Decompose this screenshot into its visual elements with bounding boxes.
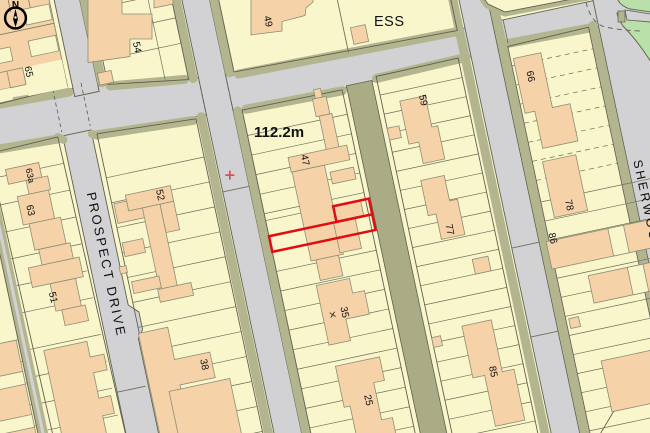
svg-text:N: N (12, 0, 19, 11)
svg-text:112.2m: 112.2m (254, 124, 304, 141)
svg-text:ESS: ESS (374, 14, 405, 30)
